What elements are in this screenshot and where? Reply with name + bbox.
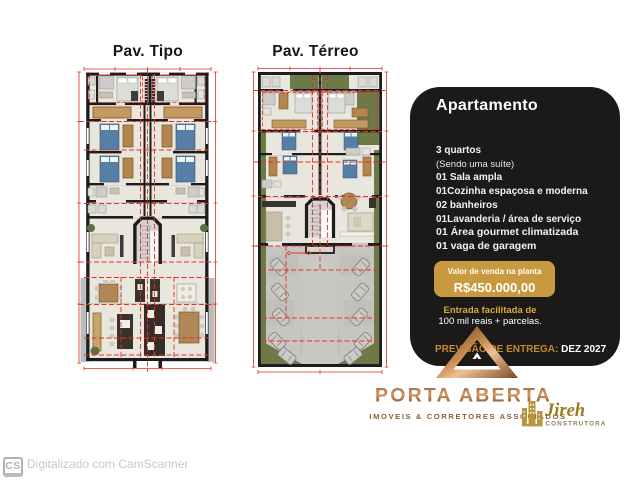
svg-text:CONSTRUTORA: CONSTRUTORA	[546, 421, 607, 428]
svg-text:Jireh: Jireh	[544, 401, 585, 421]
svg-text:PORTA ABERTA: PORTA ABERTA	[375, 385, 552, 407]
